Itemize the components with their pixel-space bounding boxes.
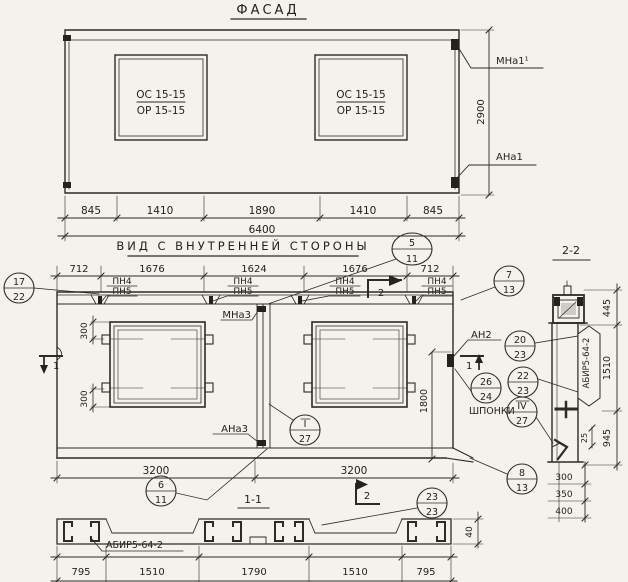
callout-bottom: 22 [13, 292, 25, 303]
callout-top: 20 [514, 335, 526, 346]
inner-window-left [102, 322, 213, 407]
facade-window-right: ОС 15-15 ОР 15-15 [315, 55, 407, 140]
callout-IV-27: IV 27 [507, 397, 553, 443]
lintel-label-top: ПН4 [112, 277, 132, 287]
callout-top: 22 [517, 371, 529, 382]
inner-dim-bottom-1: 3200 [341, 465, 368, 477]
facade-dim-3: 1410 [350, 205, 377, 217]
callout-26-24: 26 24 [455, 369, 501, 403]
cut-mark-2-bottom: 2 [364, 491, 370, 502]
dim-tab-top: 300 [80, 322, 90, 339]
anchor-tick [63, 182, 71, 188]
callout-top: 5 [409, 238, 415, 249]
anchor-tick [451, 177, 459, 188]
s22-dim-bottom-2: 400 [555, 507, 572, 517]
facade-dim-2: 1890 [249, 205, 276, 217]
inner-dim-right: 1800 [419, 389, 430, 413]
s11-dim-0: 795 [71, 567, 90, 578]
callout-20-23: 20 23 [505, 331, 578, 361]
channel-profiles [64, 522, 445, 541]
inner-dim-top-1: 1676 [139, 264, 164, 275]
inner-dim-top-4: 712 [420, 264, 439, 275]
dim-tab-bottom: 300 [80, 390, 90, 407]
inner-view: ВИД С ВНУТРЕННЕЙ СТОРОНЫ 712 1676 1624 1… [51, 238, 515, 483]
callout-7-13: 7 13 [461, 266, 524, 300]
callout-8-13: 8 13 [470, 458, 537, 494]
dim-key: 25 [580, 433, 589, 443]
section-1-1: 1-1 АБИР5-64-2 40 795 1510 1790 1510 [51, 493, 483, 582]
section-1-1-title: 1-1 [244, 493, 262, 506]
panel-mark-label: АБИР5-64-2 [106, 540, 163, 551]
callout-bottom: 24 [480, 392, 492, 403]
anchor-tick [63, 35, 71, 41]
inner-dim-top-0: 712 [69, 264, 88, 275]
callout-top: 17 [13, 277, 25, 288]
window-mark-top: ОС 15-15 [136, 89, 185, 101]
facade-dim-1: 1410 [147, 205, 174, 217]
callouts: 17 22 5 11 7 13 20 23 22 23 [4, 233, 578, 525]
t-anchor [556, 402, 576, 417]
edge-anchor [447, 354, 454, 367]
s22-dim-bottom-0: 300 [555, 473, 572, 483]
facade-anchor-bottom-label: АНа1 [496, 152, 523, 163]
lintel-label-top: ПН4 [233, 277, 253, 287]
anchor-an2-label: АН2 [471, 330, 492, 341]
callout-bottom: 23 [517, 386, 529, 397]
window-mark-top: ОС 15-15 [336, 89, 385, 101]
cut-mark-1-left: 1 [53, 361, 59, 372]
callout-top: 6 [158, 480, 164, 491]
inner-dim-bottom-0: 3200 [143, 465, 170, 477]
window-mark-bottom: ОР 15-15 [137, 105, 185, 117]
facade-title: ФАСАД [236, 3, 299, 18]
cut-mark-1-right: 1 [466, 361, 472, 372]
cut-mark-2-top: 2 [378, 288, 384, 299]
facade-view: ФАСАД ОС 15-15 ОР 15-15 ОС 15-15 ОР 15-1… [58, 3, 543, 241]
callout-22-23: 22 23 [508, 367, 578, 397]
callout-top: 26 [480, 377, 492, 388]
callout-top: I [304, 419, 307, 430]
panel-mark-banner: АБИР5-64-2 [582, 338, 592, 389]
callout-top: 7 [506, 270, 512, 281]
callout-bottom: 13 [503, 285, 515, 296]
section-2-2-title: 2-2 [562, 244, 580, 257]
callout-top: 23 [426, 492, 438, 503]
facade-dim-height: 2900 [476, 99, 487, 124]
dim-flange: 40 [465, 526, 475, 538]
s22-dim-right-2: 945 [602, 429, 613, 447]
s22-dim-bottom-1: 350 [555, 490, 572, 500]
s11-dim-2: 1790 [241, 567, 266, 578]
callout-bottom: 23 [514, 350, 526, 361]
joint-top-label: МНа3 [222, 310, 251, 321]
inner-window-right [304, 322, 415, 407]
section-2-2: 2-2 АБИР5-64-2 [548, 244, 622, 522]
facade-window-left: ОС 15-15 ОР 15-15 [115, 55, 207, 140]
s11-dim-3: 1510 [342, 567, 367, 578]
facade-anchor-top-label: МНа1¹ [496, 56, 529, 67]
anchor-tick [451, 39, 459, 50]
window-head-profile [549, 281, 587, 323]
window-mark-bottom: ОР 15-15 [337, 105, 385, 117]
callout-I-27: I 27 [269, 404, 320, 445]
panel-drawing: ФАСАД ОС 15-15 ОР 15-15 ОС 15-15 ОР 15-1… [0, 0, 628, 582]
callout-top: 8 [519, 468, 525, 479]
callout-bottom: 11 [406, 254, 418, 265]
hook-anchor [552, 440, 567, 459]
callout-bottom: 13 [516, 483, 528, 494]
callout-bottom: 27 [516, 416, 528, 427]
callout-top: IV [517, 401, 527, 412]
joint-bottom-label: АНа3 [221, 424, 248, 435]
drawing-sheet: ФАСАД ОС 15-15 ОР 15-15 ОС 15-15 ОР 15-1… [0, 0, 628, 582]
s22-dim-right-0: 445 [602, 299, 613, 317]
facade-dim-0: 845 [81, 205, 101, 217]
s11-dim-4: 795 [416, 567, 435, 578]
callout-bottom: 11 [155, 495, 167, 506]
inner-dim-top-2: 1624 [241, 264, 266, 275]
s11-dim-1: 1510 [139, 567, 164, 578]
facade-dim-4: 845 [423, 205, 443, 217]
callout-17-22: 17 22 [4, 273, 99, 303]
inner-title: ВИД С ВНУТРЕННЕЙ СТОРОНЫ [116, 238, 369, 253]
lintel-label-top: ПН4 [335, 277, 355, 287]
callout-bottom: 23 [426, 507, 438, 518]
facade-dim-total: 6400 [249, 224, 276, 236]
lintel-label-top: ПН4 [427, 277, 447, 287]
s22-dim-right-1: 1510 [602, 356, 613, 380]
callout-bottom: 27 [299, 434, 311, 445]
